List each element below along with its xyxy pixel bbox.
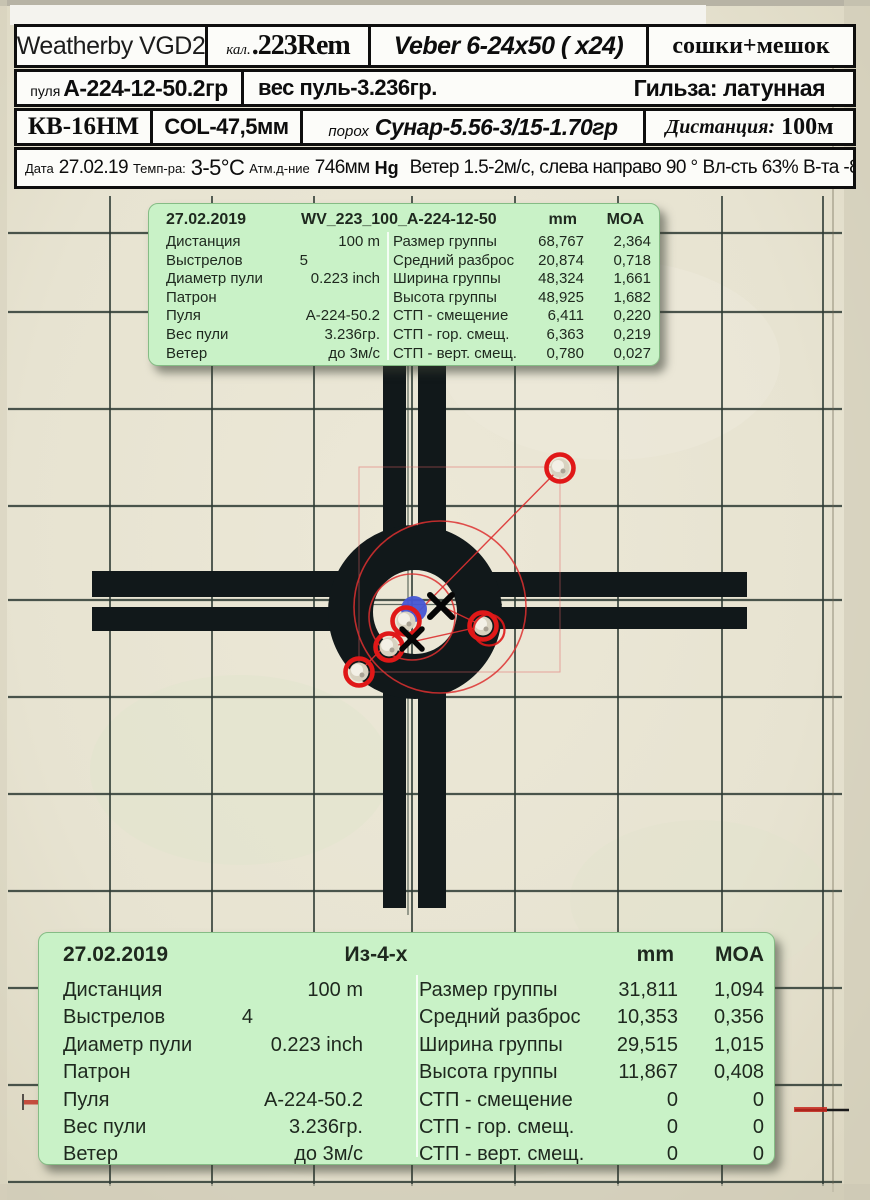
stat-mm: 29,515 bbox=[598, 1032, 678, 1059]
stat-mm: 0 bbox=[598, 1087, 678, 1114]
stat-label: Диаметр пули bbox=[63, 1032, 192, 1059]
date-value: 27.02.19 bbox=[59, 157, 128, 179]
stat-mm: 0,780 bbox=[526, 345, 584, 364]
stat-moa: 0 bbox=[678, 1141, 764, 1168]
stat-row: Высота группы48,9251,682 bbox=[393, 289, 651, 308]
stats-date: 27.02.2019 bbox=[166, 211, 301, 229]
cross-bar-top-right bbox=[418, 356, 446, 548]
stat-value: 3.236гр. bbox=[289, 1114, 363, 1141]
stat-label: Размер группы bbox=[419, 977, 598, 1004]
stat-row: СТП - смещение6,4110,220 bbox=[393, 307, 651, 326]
caliber-value: .223Rem bbox=[252, 30, 350, 62]
stat-label: СТП - гор. смещ. bbox=[419, 1114, 598, 1141]
stat-label: Ветер bbox=[63, 1141, 118, 1168]
stat-row: Средний разброс20,8740,718 bbox=[393, 252, 651, 271]
stat-row: Дистанция100 m bbox=[63, 977, 363, 1004]
stat-moa: 0,220 bbox=[584, 307, 651, 326]
cross-bar-left-upper bbox=[92, 571, 352, 597]
red-pen-mark-left bbox=[24, 1100, 38, 1105]
stat-mm: 0 bbox=[598, 1141, 678, 1168]
stat-mm: 0 bbox=[598, 1114, 678, 1141]
stat-label: Средний разброс bbox=[419, 1004, 598, 1031]
stat-row: Средний разброс10,3530,356 bbox=[419, 1004, 764, 1031]
stat-row: Выстрелов5 bbox=[166, 252, 380, 271]
conditions-cell: Дата 27.02.19 Темп-ра: 3-5°С Атм.д-ние 7… bbox=[14, 147, 856, 189]
stat-moa: 0,408 bbox=[678, 1059, 764, 1086]
bullet-weight: вес пуль-3.236гр. bbox=[258, 75, 437, 101]
primer-value: КВ-16НМ bbox=[28, 113, 139, 141]
stat-row: Ветердо 3м/с bbox=[63, 1141, 363, 1168]
stat-label: СТП - смещение bbox=[393, 307, 526, 326]
stats-bottom-left-column: Дистанция100 m Выстрелов4 Диаметр пули0.… bbox=[63, 977, 363, 1169]
column-divider bbox=[416, 975, 418, 1157]
distance-label: Дистанция: bbox=[666, 116, 776, 139]
stat-label: Вес пули bbox=[63, 1114, 146, 1141]
photo-edge-bottom bbox=[0, 1184, 870, 1200]
stats-bottom-right-column: Размер группы31,8111,094 Средний разброс… bbox=[419, 977, 764, 1169]
cross-bar-right-upper bbox=[476, 572, 747, 597]
stat-moa: 1,015 bbox=[678, 1032, 764, 1059]
stat-row: Выстрелов4 bbox=[63, 1004, 363, 1031]
stat-row: СТП - смещение00 bbox=[419, 1087, 764, 1114]
distance-value: 100м bbox=[781, 114, 833, 141]
rifle-cell: Weatherby VGD2 bbox=[14, 24, 208, 68]
stats-top-right-column: Размер группы68,7672,364 Средний разброс… bbox=[393, 233, 651, 363]
stat-label: Высота группы bbox=[419, 1059, 598, 1086]
col-value: COL-47,5мм bbox=[164, 114, 288, 140]
col-cell: COL-47,5мм bbox=[150, 108, 303, 146]
scope-name: Veber 6-24x50 ( x24) bbox=[394, 32, 624, 61]
stats-top-header: 27.02.2019 WV_223_100_A-224-12-50 mm MOA bbox=[166, 211, 644, 229]
stat-moa: 0,027 bbox=[584, 345, 651, 364]
stat-mm: 6,363 bbox=[526, 326, 584, 345]
stat-row: Ветердо 3м/с bbox=[166, 345, 380, 364]
altitude-value: В-та -84м bbox=[803, 157, 856, 179]
stat-value: до 3м/с bbox=[294, 1141, 363, 1168]
stat-value: 3.236гр. bbox=[324, 326, 380, 345]
stat-row: СТП - гор. смещ.6,3630,219 bbox=[393, 326, 651, 345]
bullet-cell: пуля А-224-12-50.2гр bbox=[14, 69, 244, 107]
case-type: Гильза: латунная bbox=[634, 75, 825, 102]
stat-label: Патрон bbox=[63, 1059, 131, 1086]
stat-row: Вес пули3.236гр. bbox=[63, 1114, 363, 1141]
stat-label: СТП - верт. смещ. bbox=[393, 345, 526, 364]
stats-date: 27.02.2019 bbox=[63, 943, 303, 967]
paper-strip-top bbox=[10, 5, 706, 25]
stat-mm: 48,324 bbox=[526, 270, 584, 289]
stat-moa: 2,364 bbox=[584, 233, 651, 252]
stat-mm: 20,874 bbox=[526, 252, 584, 271]
pressure-value: 746мм bbox=[315, 157, 370, 179]
column-divider bbox=[387, 232, 389, 360]
stat-label: Патрон bbox=[166, 289, 217, 308]
stat-row: СТП - гор. смещ.00 bbox=[419, 1114, 764, 1141]
stat-label: Дистанция bbox=[166, 233, 240, 252]
humidity-value: Вл-сть 63% bbox=[703, 157, 799, 179]
stat-row: Патрон bbox=[166, 289, 380, 308]
paper-stain bbox=[90, 675, 390, 865]
stat-value: до 3м/с bbox=[328, 345, 380, 364]
cross-bar-left-lower bbox=[92, 607, 350, 631]
rifle-name: Weatherby VGD2 bbox=[17, 32, 205, 61]
cross-bar-top-left bbox=[383, 356, 406, 548]
temp-label: Темп-ра: bbox=[133, 161, 186, 176]
cross-bar-right-lower bbox=[476, 607, 747, 629]
stat-label: Выстрелов bbox=[166, 252, 243, 271]
shooting-target-report: Weatherby VGD2 кал. .223Rem Veber 6-24x5… bbox=[0, 0, 870, 1200]
stats-box-5-shots: 27.02.2019 WV_223_100_A-224-12-50 mm MOA… bbox=[148, 203, 660, 366]
moa-column-header: MOA bbox=[577, 211, 644, 229]
powder-value: Сунар-5.56-3/15-1.70гр bbox=[375, 114, 618, 141]
stat-mm: 48,925 bbox=[526, 289, 584, 308]
pressure-label: Атм.д-ние bbox=[249, 161, 309, 176]
stat-mm: 10,353 bbox=[598, 1004, 678, 1031]
stat-row: СТП - верт. смещ.0,7800,027 bbox=[393, 345, 651, 364]
stat-moa: 0 bbox=[678, 1087, 764, 1114]
temp-value: 3-5°С bbox=[191, 155, 244, 181]
caliber-cell: кал. .223Rem bbox=[205, 24, 371, 68]
stat-moa: 1,094 bbox=[678, 977, 764, 1004]
stat-row: ПуляА-224-50.2 bbox=[166, 307, 380, 326]
stat-label: Вес пули bbox=[166, 326, 228, 345]
stat-value: 4 bbox=[242, 1004, 253, 1031]
stat-label: Выстрелов bbox=[63, 1004, 165, 1031]
stat-label: СТП - гор. смещ. bbox=[393, 326, 526, 345]
stats-box-4-shots: 27.02.2019 Из-4-х mm MOA Дистанция100 m … bbox=[38, 932, 775, 1165]
stat-row: СТП - верт. смещ.00 bbox=[419, 1141, 764, 1168]
mm-column-header: mm bbox=[519, 211, 577, 229]
stat-mm: 6,411 bbox=[526, 307, 584, 326]
stat-row: Размер группы68,7672,364 bbox=[393, 233, 651, 252]
stat-value: 5 bbox=[300, 252, 308, 271]
bullet-value: А-224-12-50.2гр bbox=[63, 75, 227, 102]
stat-moa: 1,682 bbox=[584, 289, 651, 308]
stat-label: Пуля bbox=[63, 1087, 109, 1114]
stat-label: СТП - смещение bbox=[419, 1087, 598, 1114]
pressure-unit: Hg bbox=[375, 158, 399, 179]
stat-moa: 0,356 bbox=[678, 1004, 764, 1031]
stat-row: Дистанция100 m bbox=[166, 233, 380, 252]
stat-value: 0.223 inch bbox=[311, 270, 380, 289]
stat-mm: 31,811 bbox=[598, 977, 678, 1004]
date-label: Дата bbox=[25, 161, 54, 176]
mm-column-header: mm bbox=[584, 943, 674, 967]
stats-title: Из-4-х bbox=[296, 943, 456, 967]
stat-label: Диаметр пули bbox=[166, 270, 263, 289]
moa-column-header: MOA bbox=[676, 943, 764, 967]
rest-cell: сошки+мешок bbox=[646, 24, 856, 68]
stat-label: Высота группы bbox=[393, 289, 526, 308]
stat-row: Ширина группы48,3241,661 bbox=[393, 270, 651, 289]
weight-case-cell: вес пуль-3.236гр. Гильза: латунная bbox=[241, 69, 856, 107]
stat-label: Пуля bbox=[166, 307, 201, 326]
bullet-label: пуля bbox=[30, 83, 60, 99]
stat-moa: 0,718 bbox=[584, 252, 651, 271]
stat-value: А-224-50.2 bbox=[264, 1087, 363, 1114]
scope-cell: Veber 6-24x50 ( x24) bbox=[368, 24, 649, 68]
stat-row: Диаметр пули0.223 inch bbox=[166, 270, 380, 289]
stat-label: Ветер bbox=[166, 345, 207, 364]
stat-row: ПуляА-224-50.2 bbox=[63, 1087, 363, 1114]
red-pen-mark-right bbox=[794, 1107, 827, 1112]
stat-row: Высота группы11,8670,408 bbox=[419, 1059, 764, 1086]
stat-mm: 68,767 bbox=[526, 233, 584, 252]
photo-edge-left bbox=[0, 0, 7, 1200]
stat-label: СТП - верт. смещ. bbox=[419, 1141, 598, 1168]
stat-row: Ширина группы29,5151,015 bbox=[419, 1032, 764, 1059]
stat-moa: 1,661 bbox=[584, 270, 651, 289]
powder-cell: порох Сунар-5.56-3/15-1.70гр bbox=[300, 108, 646, 146]
stat-value: 100 m bbox=[307, 977, 363, 1004]
stat-value: 100 m bbox=[338, 233, 380, 252]
stat-moa: 0 bbox=[678, 1114, 764, 1141]
stat-label: Средний разброс bbox=[393, 252, 526, 271]
stat-value: А-224-50.2 bbox=[306, 307, 380, 326]
caliber-label: кал. bbox=[226, 42, 250, 59]
powder-label: порох bbox=[328, 123, 368, 140]
rest-type: сошки+мешок bbox=[672, 33, 829, 60]
stat-row: Размер группы31,8111,094 bbox=[419, 977, 764, 1004]
primer-cell: КВ-16НМ bbox=[14, 108, 153, 146]
stat-value: 0.223 inch bbox=[271, 1032, 363, 1059]
stat-row: Диаметр пули0.223 inch bbox=[63, 1032, 363, 1059]
stat-row: Вес пули3.236гр. bbox=[166, 326, 380, 345]
wind-value: Ветер 1.5-2м/с, слева направо 90 ° bbox=[410, 157, 698, 179]
stat-label: Размер группы bbox=[393, 233, 526, 252]
distance-cell: Дистанция: 100м bbox=[643, 108, 856, 146]
stat-mm: 11,867 bbox=[598, 1059, 678, 1086]
stat-label: Дистанция bbox=[63, 977, 162, 1004]
stats-title: WV_223_100_A-224-12-50 bbox=[301, 211, 519, 229]
stat-label: Ширина группы bbox=[419, 1032, 598, 1059]
stat-label: Ширина группы bbox=[393, 270, 526, 289]
stats-top-left-column: Дистанция100 m Выстрелов5 Диаметр пули0.… bbox=[166, 233, 380, 363]
stat-moa: 0,219 bbox=[584, 326, 651, 345]
stat-row: Патрон bbox=[63, 1059, 363, 1086]
